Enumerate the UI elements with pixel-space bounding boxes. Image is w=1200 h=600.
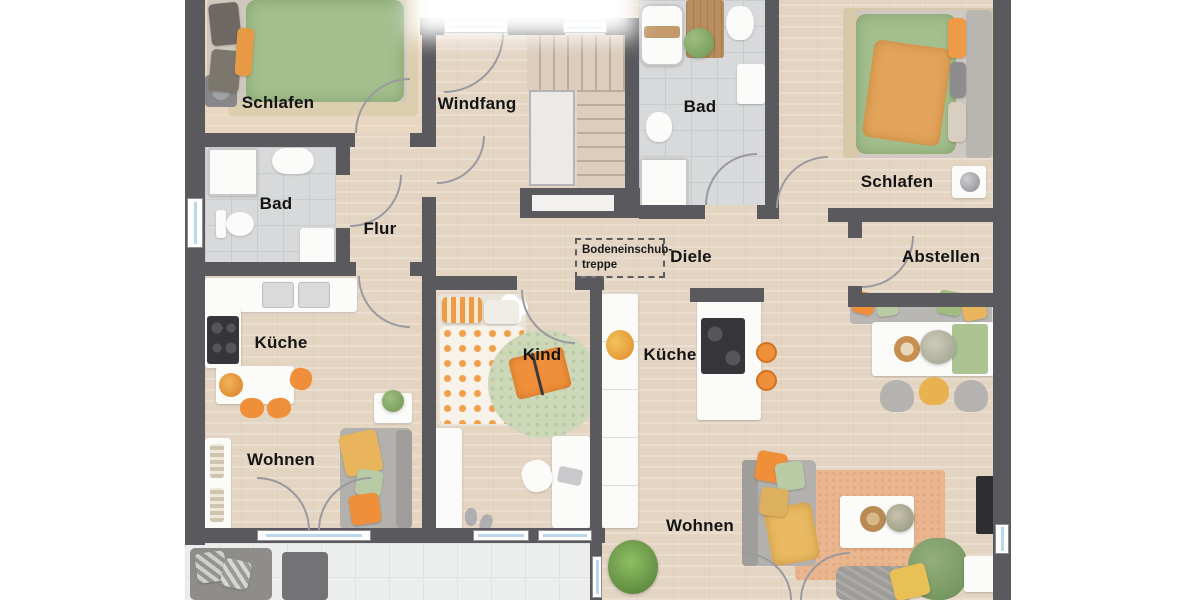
loft-ladder-line1: Bodeneinschub- [582,243,658,258]
window-right-wall [995,524,1009,554]
door-glass [449,25,502,28]
staircase-lower-run [577,90,625,202]
wardrobe [432,428,462,530]
plant [382,390,404,412]
staircase-upper-run [527,35,625,90]
wall-bedroom-right-bottom [828,208,993,222]
room-label-wohnen-left: Wohnen [247,450,315,470]
wall-bath-top-bottom-a [639,205,705,219]
room-label-kind: Kind [523,345,562,365]
tall-cabinet [602,293,638,528]
room-label-bad-left: Bad [260,194,293,214]
exterior-light-glow [428,0,616,18]
staircase-core [529,90,575,186]
room-label-bad-top: Bad [684,97,717,117]
wall-windfang-left-upper [422,18,436,133]
window-glass [478,534,524,537]
niche-panel [532,195,614,211]
room-label-schlafen-left: Schlafen [242,93,314,113]
window-glass [194,202,197,243]
toilet [646,112,672,142]
wall-diele-kitchen-right [690,288,764,302]
wall-kind-left [422,276,436,540]
fruit-bowl [606,330,634,360]
pillow [948,18,966,58]
room-label-kueche-left: Küche [255,333,308,353]
room-label-diele: Diele [670,247,712,267]
washbasin [726,6,754,40]
room-label-abstellen: Abstellen [902,247,980,267]
pillow [234,27,254,76]
wall-outer-left [185,0,205,545]
loft-ladder-annotation: Bodeneinschub- treppe [575,238,665,278]
wall-bath-left-stub-a [336,147,350,175]
books [210,444,224,478]
room-label-wohnen-right: Wohnen [666,516,734,536]
chair-gray [880,380,914,412]
tv-console [964,556,996,592]
stool-orange [756,370,777,391]
sofa-back [396,430,412,528]
wall-unit-divider [590,276,602,600]
window-glass [543,534,588,537]
pillow-striped [219,557,252,590]
window-divider-wall [592,556,602,598]
room-label-windfang: Windfang [438,94,517,114]
window-bottom-a [473,530,529,541]
loft-ladder-line2: treppe [582,258,658,273]
wall-flur-kitchen-a [336,262,356,276]
window-glass [567,26,603,29]
wall-storage-stub-a [848,222,862,238]
door-glass [266,534,362,537]
room-label-flur: Flur [364,219,397,239]
washbasin [272,148,314,174]
cooktop [207,316,239,364]
chair-gray [954,380,988,412]
pillow [442,297,482,323]
decor-bowl [894,336,920,362]
sink [298,282,330,308]
wall-top-b [508,18,565,35]
window-windfang [563,21,607,33]
throw-orange [862,39,953,147]
wood-bowl [860,506,886,532]
wall-bedroom-right-left [765,0,779,219]
floorplan-canvas: Schlafen Windfang Bad Schlafen Bad Flur … [0,0,1200,600]
plant [684,28,714,58]
pillow [948,102,966,142]
chair-orange [240,398,264,418]
wall-outer-right [993,0,1011,600]
cooktop [701,318,745,374]
stool-orange [756,342,777,363]
window-glass [1001,527,1004,551]
wall-kind-top-a [436,276,517,290]
pillow [950,62,966,98]
chair-yellow [919,377,949,405]
decor-sphere [960,172,980,192]
terrace-french-door [257,530,371,541]
books [210,488,224,522]
room-label-kueche-right: Küche [644,345,697,365]
pillow [759,487,790,518]
toilet-tank [216,210,226,238]
wall-flur-kitchen-b [410,262,436,276]
fruit-bowl [219,373,243,397]
wall-stairs-right [625,18,639,208]
wall-storage-bottom [848,293,993,307]
room-label-schlafen-right: Schlafen [861,172,933,192]
window-bottom-b [538,530,592,541]
pillow [774,460,806,492]
terrace-rug [282,552,328,600]
table-runner [952,324,988,374]
entrance-door [444,20,508,33]
shower [208,148,258,196]
bath-cabinet [737,64,765,104]
palm-plant [608,540,658,594]
sink [262,282,294,308]
dried-flowers [920,330,956,364]
plant [886,504,914,532]
wall-bedroom-left-bottom-b [410,133,436,147]
toilet [226,212,254,236]
bath-cabinet [300,228,334,266]
bathtub-caddy [644,26,680,38]
window-left-wall [187,198,203,248]
shower [640,158,688,208]
wall-bath-left-bottom [205,262,336,276]
slipper [465,508,477,526]
wall-bedroom-left-bottom-a [205,133,355,147]
headboard [966,10,992,158]
window-glass [596,560,599,594]
pillow [484,300,518,324]
